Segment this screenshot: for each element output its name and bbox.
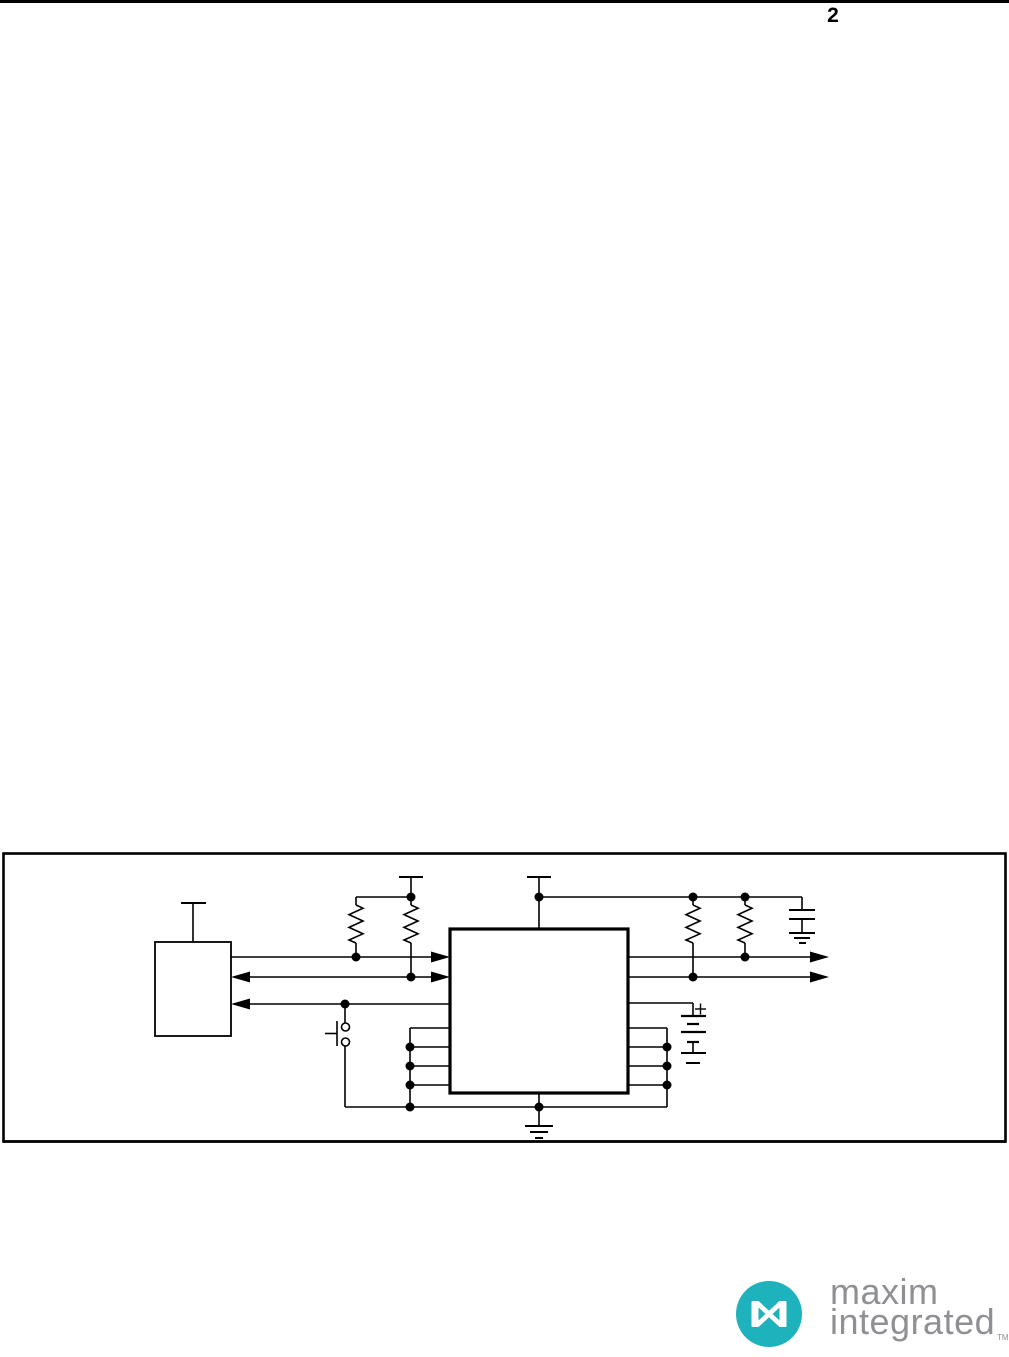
maxim-logo-mark-icon — [736, 1281, 802, 1347]
typical-operating-circuit-figure — [0, 0, 1009, 1357]
logo-word-integrated: integrated — [830, 1307, 995, 1337]
maxim-logo-wordmark: maxim integrated — [830, 1277, 995, 1337]
trademark-symbol: TM — [997, 1333, 1009, 1342]
maxim-integrated-logo: maxim integrated TM — [736, 1281, 1006, 1351]
